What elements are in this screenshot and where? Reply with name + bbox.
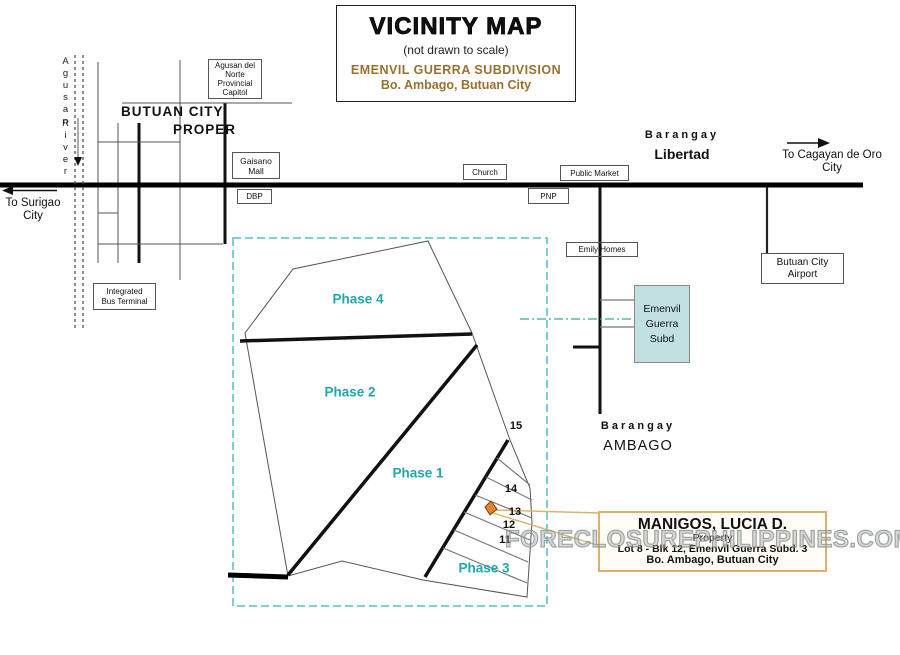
place-box-emenvil-subd: Emenvil Guerra Subd: [634, 285, 690, 363]
vicinity-map: VICINITY MAP (not drawn to scale) EMENVI…: [0, 0, 900, 655]
cagayan-arrow-icon: [818, 138, 830, 148]
barangay-libertad-prefix: Barangay: [639, 129, 725, 141]
place-box-public-market: Public Market: [560, 165, 629, 181]
main-highway: [0, 185, 863, 195]
property-callout-line4: Bo. Ambago, Butuan City: [600, 555, 825, 567]
barangay-ambago: Barangay AMBAGO: [597, 420, 679, 454]
place-box-emily-homes: Emily Homes: [566, 242, 638, 257]
watermark-text: FORECLOSUREPHILIPPINES.COM: [505, 526, 900, 554]
direction-cagayan: To Cagayan de Oro City: [778, 149, 886, 174]
place-box-airport: Butuan City Airport: [761, 253, 844, 284]
city-name-line1: BUTUAN CITY: [121, 104, 224, 119]
place-box-capitol: Agusan del Norte Provincial Capitol: [208, 59, 262, 99]
place-box-church: Church: [463, 164, 507, 180]
city-name-line2: PROPER: [173, 122, 236, 137]
lot-14-label: 14: [505, 483, 517, 495]
barangay-libertad-name: Libertad: [639, 146, 725, 162]
title-subtitle: (not drawn to scale): [337, 43, 575, 57]
page-title: VICINITY MAP: [337, 13, 575, 41]
emily-homes-label: Emily Homes: [578, 245, 625, 254]
barangay-libertad: Barangay Libertad: [639, 129, 725, 162]
direction-surigao: To Surigao City: [2, 197, 64, 222]
place-box-bus-terminal: Integrated Bus Terminal: [93, 283, 156, 310]
emenvil-line2: Guerra: [646, 317, 679, 332]
place-box-dbp: DBP: [237, 189, 272, 204]
lot-15-label: 15: [510, 420, 522, 432]
place-box-pnp: PNP: [528, 188, 569, 204]
barangay-ambago-name: AMBAGO: [597, 438, 679, 454]
direction-surigao-line1: To Surigao: [2, 197, 64, 210]
gaisano-line1: Gaisano: [240, 156, 272, 166]
capitol-line3: Provincial: [218, 79, 253, 88]
bus-terminal-line1: Integrated: [106, 287, 142, 297]
airport-line2: Airport: [788, 269, 817, 281]
cagayan-arrow: [787, 138, 830, 148]
barangay-ambago-prefix: Barangay: [597, 420, 679, 432]
capitol-line2: Norte: [225, 70, 245, 79]
direction-surigao-line2: City: [2, 210, 64, 223]
lot-13-label: 13: [509, 506, 521, 518]
dbp-label: DBP: [246, 192, 262, 201]
phase-2-label: Phase 2: [324, 385, 375, 400]
emenvil-line3: Subd: [650, 332, 675, 347]
airport-line1: Butuan City: [777, 257, 829, 269]
place-box-gaisano: Gaisano Mall: [232, 152, 280, 179]
phase-4-label: Phase 4: [332, 292, 383, 307]
public-market-label: Public Market: [570, 169, 618, 178]
subdivision-location: Bo. Ambago, Butuan City: [337, 78, 575, 92]
pnp-label: PNP: [540, 192, 556, 201]
plat-outline: [245, 241, 532, 597]
capitol-line4: Capitol: [223, 88, 248, 97]
direction-cagayan-line1: To Cagayan de Oro: [778, 149, 886, 162]
agusan-river: [74, 55, 83, 328]
church-label: Church: [472, 168, 498, 177]
title-box: VICINITY MAP (not drawn to scale) EMENVI…: [336, 5, 576, 102]
subdivision-name: EMENVIL GUERRA SUBDIVISION: [337, 63, 575, 77]
phase-3-label: Phase 3: [458, 561, 509, 576]
gaisano-line2: Mall: [248, 166, 264, 176]
plat-entry-road: [228, 575, 288, 577]
emenvil-line1: Emenvil: [643, 302, 680, 317]
capitol-line1: Agusan del: [215, 61, 255, 70]
phase-1-label: Phase 1: [392, 466, 443, 481]
direction-cagayan-line2: City: [778, 162, 886, 175]
river-label-river: River: [60, 118, 71, 178]
bus-terminal-line2: Bus Terminal: [101, 297, 147, 307]
